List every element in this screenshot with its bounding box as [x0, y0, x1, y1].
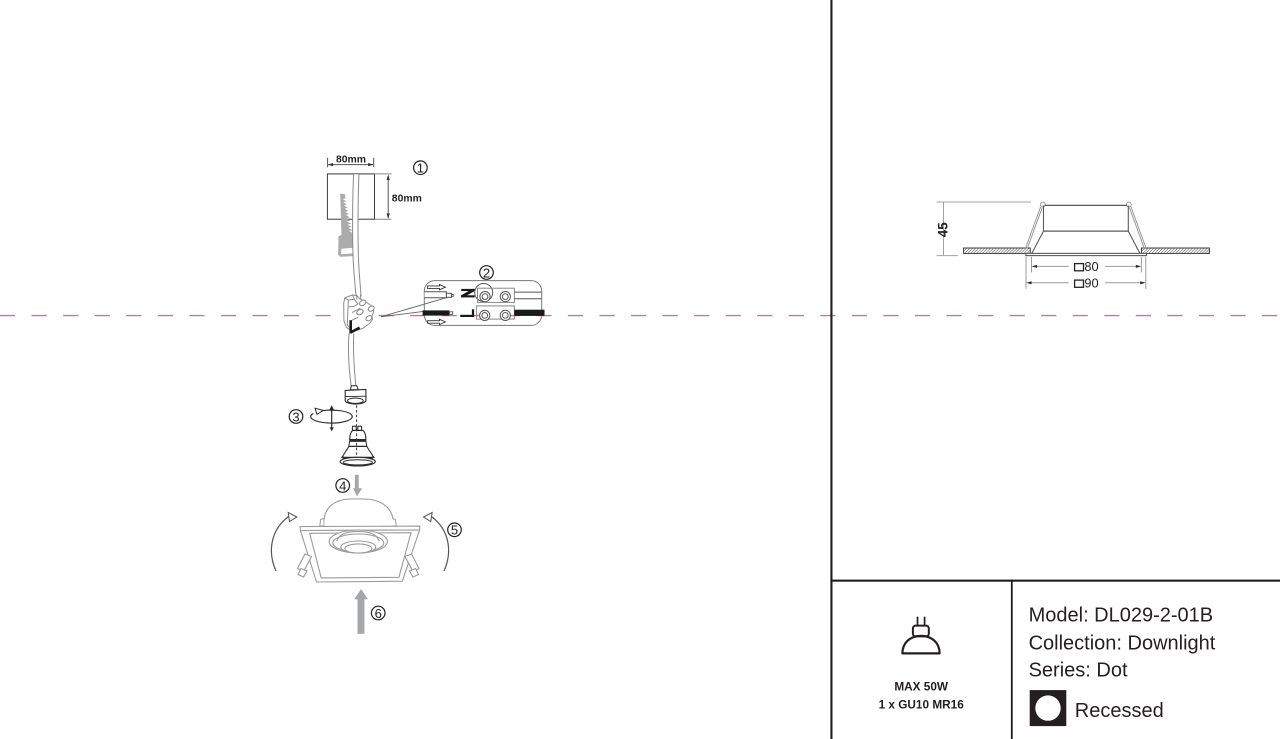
svg-text:80: 80	[1084, 259, 1098, 274]
svg-text:90: 90	[1084, 276, 1098, 291]
svg-text:3: 3	[292, 409, 299, 424]
svg-text:6: 6	[375, 606, 382, 621]
svg-text:4: 4	[339, 478, 346, 493]
svg-text:5: 5	[451, 523, 458, 538]
svg-text:Collection: Downlight: Collection: Downlight	[1029, 632, 1216, 654]
svg-text:Recessed: Recessed	[1075, 700, 1164, 722]
svg-text:80mm: 80mm	[336, 154, 366, 165]
svg-text:80mm: 80mm	[392, 194, 422, 205]
svg-text:Series: Dot: Series: Dot	[1029, 660, 1128, 682]
svg-text:MAX 50W: MAX 50W	[894, 679, 949, 693]
svg-text:1 x GU10 MR16: 1 x GU10 MR16	[879, 697, 965, 711]
svg-text:1: 1	[417, 161, 424, 176]
svg-text:45: 45	[936, 222, 951, 237]
svg-text:2: 2	[483, 265, 490, 280]
svg-text:Model: DL029-2-01B: Model: DL029-2-01B	[1029, 604, 1214, 626]
